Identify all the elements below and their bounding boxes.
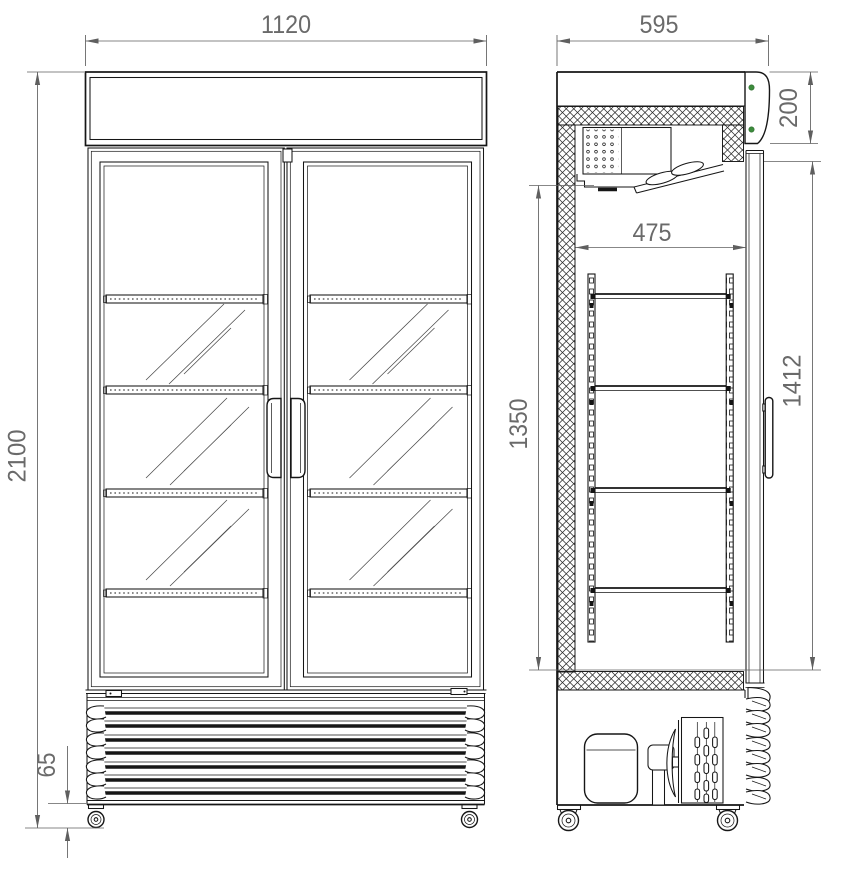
louver-slats: [86, 706, 484, 799]
compressor: [585, 734, 638, 803]
caster-front-right: [462, 805, 478, 828]
dim-internal-height-label: 1350: [505, 399, 533, 450]
dim-canopy-height-label: 200: [775, 88, 803, 128]
door-right-glass-frame: [304, 162, 472, 677]
interior-shelf-rack: [588, 274, 734, 642]
light-box: [86, 72, 487, 146]
refrigerator-technical-drawing: 1120 2100 65 595 200 475 1350 141: [0, 0, 841, 875]
dim-canopy-height: 200: [770, 72, 819, 144]
light-box-inner-panel: [90, 78, 482, 140]
dim-caster-height-label: 65: [33, 753, 61, 778]
insulation-front-top: [723, 125, 744, 162]
center-mullion-bracket: [283, 149, 292, 162]
evaporator-coil-plate: [585, 130, 619, 173]
door-handle-side: [763, 398, 773, 479]
caster-front-left: [88, 805, 104, 828]
door-left-glass-frame: [100, 162, 268, 677]
side-shelf: [591, 294, 731, 299]
glass-door-right: [287, 148, 484, 690]
insulation-back-wall: [558, 125, 575, 672]
glass-reflection-left: [146, 304, 249, 586]
dim-overall-width-label: 1120: [261, 11, 311, 39]
shelf-post-front: [588, 274, 595, 642]
led-canopy-panel: [745, 72, 770, 144]
dim-overall-depth-label: 595: [640, 11, 679, 39]
side-shelf: [591, 488, 731, 493]
caster-side-front: [558, 805, 581, 831]
shelf: [104, 295, 268, 305]
condenser-fan-blade: [667, 718, 682, 804]
evaporator-unit: [577, 128, 724, 194]
insulation-hatch: [558, 107, 744, 691]
shelf: [308, 386, 472, 396]
shelves-front-right: [308, 295, 472, 599]
dim-door-glass-height-label: 1412: [779, 355, 807, 408]
door-handle-left: [267, 399, 281, 478]
caster-side-rear: [717, 805, 740, 831]
condenser-coil: [682, 718, 724, 804]
power-led-icon: [749, 127, 754, 132]
machine-compartment: [558, 698, 771, 831]
drawing-canvas: 1120 2100 65 595 200 475 1350 141: [0, 0, 841, 875]
dim-caster-height: 65: [33, 746, 86, 858]
front-view: [86, 72, 487, 828]
shelf: [104, 386, 268, 396]
fan-blade: [670, 159, 705, 178]
dim-internal-height: 1350: [505, 186, 821, 671]
shelf: [308, 295, 472, 305]
glass-reflection-right: [350, 304, 453, 586]
power-led-icon: [749, 85, 754, 90]
door-handle-right: [291, 399, 305, 478]
front-base-grille: [86, 689, 487, 805]
side-shelf: [591, 588, 731, 593]
base-front-louvers: [746, 698, 770, 805]
shelves-front-left: [104, 295, 268, 599]
side-shelf: [591, 386, 731, 391]
side-door: [746, 151, 773, 706]
glass-door-left: [88, 148, 284, 690]
shelf: [104, 489, 268, 499]
dim-internal-depth-label: 475: [633, 219, 672, 247]
shelf: [104, 589, 268, 599]
hinge-badge-left: [106, 691, 122, 697]
dim-overall-height-label: 2100: [4, 430, 32, 483]
insulation-floor: [558, 672, 744, 691]
dim-overall-width: 1120: [86, 11, 487, 66]
shelf: [308, 589, 472, 599]
shelf: [308, 489, 472, 499]
dim-internal-depth: 475: [576, 219, 747, 248]
dim-overall-depth: 595: [557, 11, 769, 66]
shelf-post-rear: [726, 274, 733, 642]
insulation-top: [558, 107, 744, 126]
